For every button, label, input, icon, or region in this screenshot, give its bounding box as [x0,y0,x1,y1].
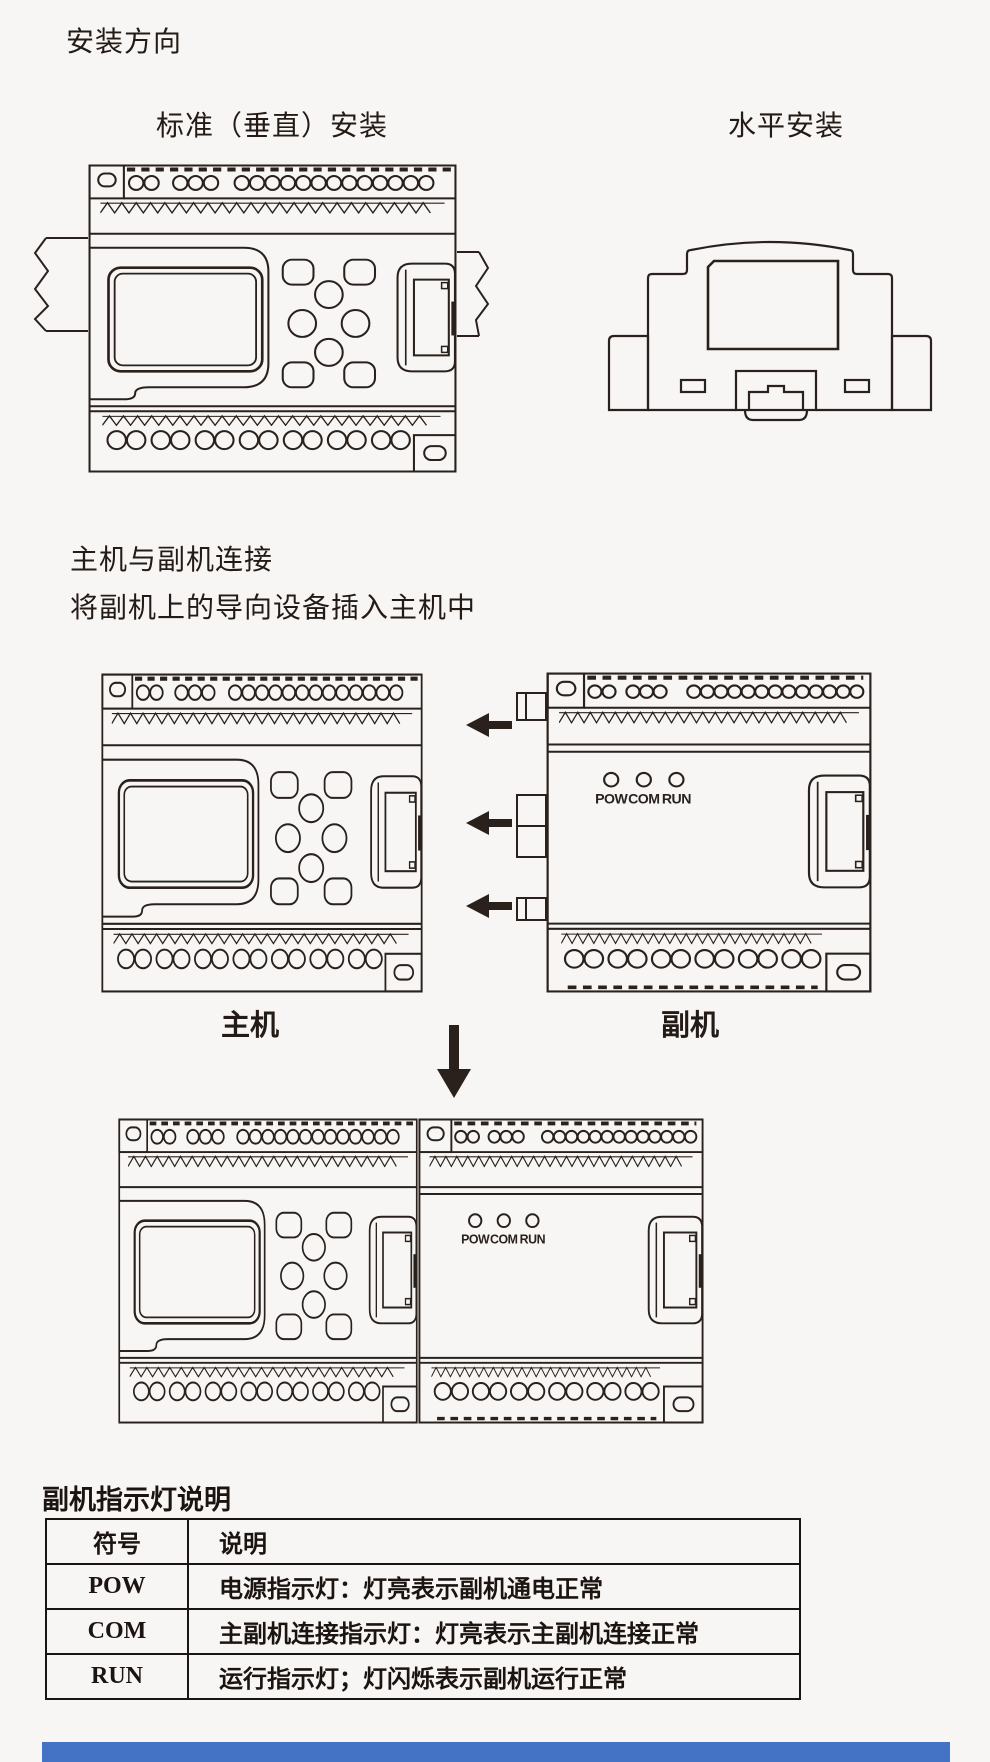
sub-unit-drawing [548,674,871,992]
assembled-sub-unit-drawing [418,1118,704,1424]
page-title: 安装方向 [66,20,182,60]
description-cell: 主副机连接指示灯：灯亮表示主副机连接正常 [188,1609,800,1654]
main-unit-drawing [102,675,422,992]
connect-section-title: 主机与副机连接 [70,538,273,578]
manual-page: POW COM RUN [0,0,990,1762]
horizontal-install-label: 水平安装 [646,104,926,144]
symbol-cell: POW [46,1564,188,1609]
top-display [708,261,838,349]
connection-diagram [30,660,960,1005]
main-unit-drawing [90,165,456,471]
header-description: 说明 [188,1519,800,1564]
vertical-install-drawing [30,150,490,480]
indicator-table: 符号 说明 POW 电源指示灯：灯亮表示副机通电正常 COM 主副机连接指示灯：… [45,1518,801,1700]
header-symbol: 符号 [46,1519,188,1564]
symbol-cell: COM [46,1609,188,1654]
assembled-main-unit-drawing [118,1118,418,1424]
din-clip-bottom [736,371,816,420]
table-row: RUN 运行指示灯；灯闪烁表示副机运行正常 [46,1654,800,1699]
left-arrow-icon [466,894,512,918]
description-cell: 电源指示灯：灯亮表示副机通电正常 [188,1564,800,1609]
guide-tabs [517,693,546,920]
din-rail-left [35,238,88,331]
din-rail-right [457,252,488,336]
left-arrow-icon [466,713,512,737]
left-arrow-icon [466,811,512,835]
table-row: COM 主副机连接指示灯：灯亮表示主副机连接正常 [46,1609,800,1654]
table-row: POW 电源指示灯：灯亮表示副机通电正常 [46,1564,800,1609]
connect-instruction: 将副机上的导向设备插入主机中 [70,586,476,626]
vertical-install-label: 标准（垂直）安装 [132,104,412,144]
table-header-row: 符号 说明 [46,1519,800,1564]
bottom-blue-bar [42,1742,950,1762]
body-profile [648,242,892,410]
symbol-cell: RUN [46,1654,188,1699]
table-title: 副机指示灯说明 [42,1478,231,1517]
horizontal-install-drawing [600,230,940,426]
left-wing [609,336,648,410]
sub-unit-label: 副机 [630,1002,750,1044]
main-unit-label: 主机 [190,1002,310,1044]
right-wing [892,336,931,410]
down-arrow-icon [437,1025,471,1099]
description-cell: 运行指示灯；灯闪烁表示副机运行正常 [188,1654,800,1699]
